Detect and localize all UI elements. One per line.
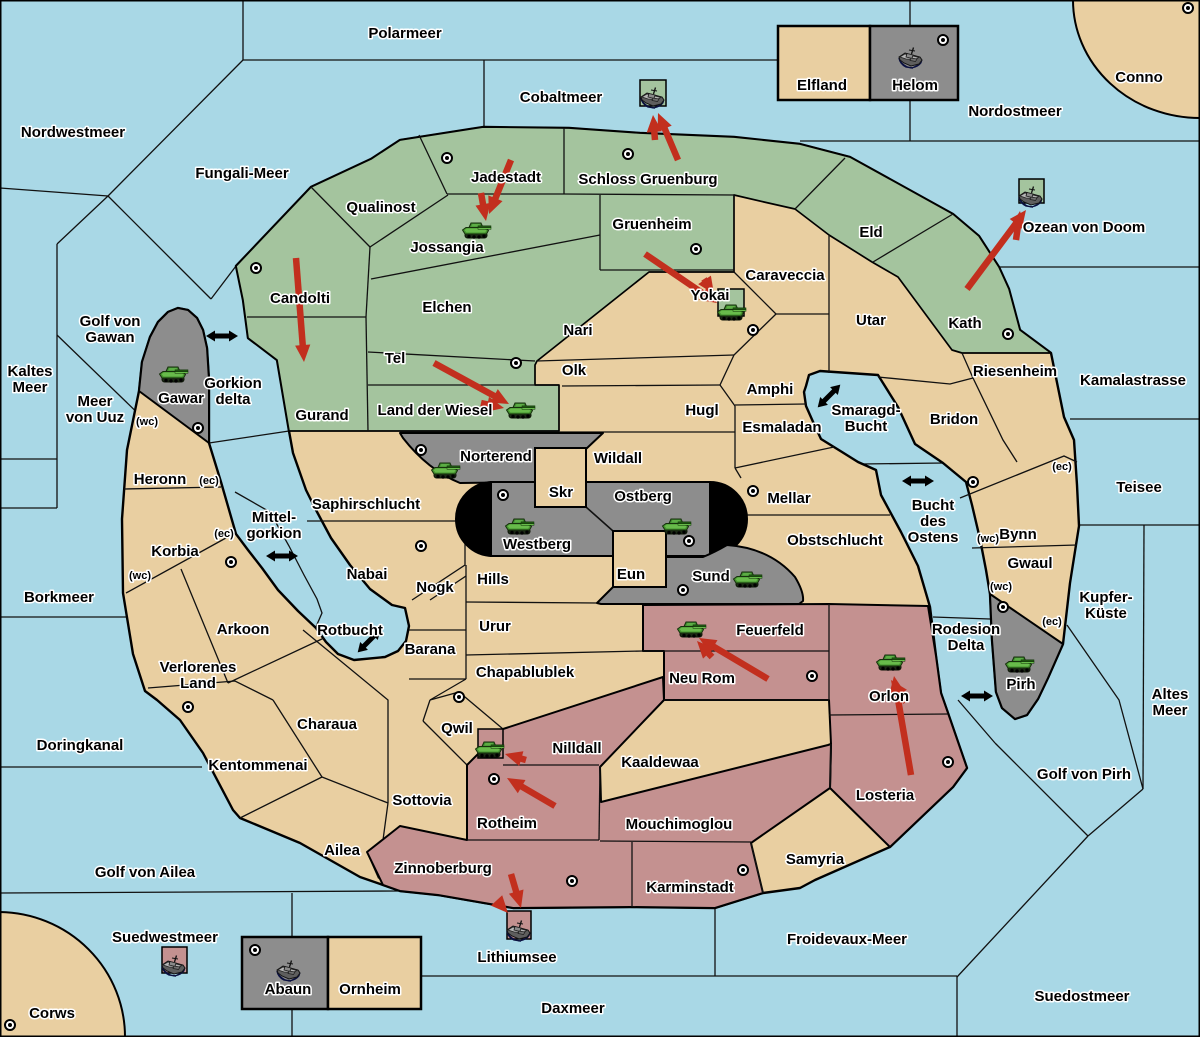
svg-text:(ec): (ec) (1042, 616, 1062, 628)
svg-text:Rotheim: Rotheim (477, 815, 537, 832)
svg-text:Caraveccia: Caraveccia (745, 267, 825, 284)
svg-text:Gawar: Gawar (158, 390, 204, 407)
svg-text:Riesenheim: Riesenheim (973, 363, 1057, 380)
svg-text:Candolti: Candolti (270, 290, 330, 307)
svg-text:Ostberg: Ostberg (614, 488, 672, 505)
svg-text:Land: Land (180, 675, 216, 692)
svg-text:Gawan: Gawan (85, 329, 134, 346)
svg-text:Hills: Hills (477, 571, 509, 588)
svg-text:Heronn: Heronn (134, 471, 187, 488)
svg-text:Golf von: Golf von (80, 313, 141, 330)
svg-text:Feuerfeld: Feuerfeld (736, 622, 804, 639)
svg-text:Nilldall: Nilldall (552, 740, 601, 757)
svg-text:Utar: Utar (856, 312, 886, 329)
svg-text:Ailea: Ailea (324, 842, 361, 859)
svg-text:Helom: Helom (892, 77, 938, 94)
svg-text:Meer: Meer (77, 393, 112, 410)
svg-text:(wc): (wc) (129, 570, 151, 582)
svg-text:Elfland: Elfland (797, 77, 847, 94)
svg-text:Borkmeer: Borkmeer (24, 589, 94, 606)
svg-text:Orlon: Orlon (869, 688, 909, 705)
svg-text:Nari: Nari (563, 322, 592, 339)
svg-text:Arkoon: Arkoon (217, 621, 270, 638)
svg-text:Qwil: Qwil (441, 720, 473, 737)
svg-text:Teisee: Teisee (1116, 479, 1162, 496)
svg-text:Elchen: Elchen (422, 299, 471, 316)
svg-text:Pirh: Pirh (1006, 676, 1035, 693)
svg-text:Froidevaux-Meer: Froidevaux-Meer (787, 931, 907, 948)
svg-text:Esmaladan: Esmaladan (742, 419, 821, 436)
svg-text:Obstschlucht: Obstschlucht (787, 532, 883, 549)
svg-text:Ozean von Doom: Ozean von Doom (1023, 219, 1146, 236)
svg-text:Eun: Eun (617, 566, 645, 583)
svg-text:Golf von Ailea: Golf von Ailea (95, 864, 196, 881)
svg-text:Küste: Küste (1085, 605, 1127, 622)
svg-text:Urur: Urur (479, 618, 511, 635)
svg-text:Chapablublek: Chapablublek (476, 664, 575, 681)
svg-text:Tel: Tel (385, 350, 406, 367)
svg-text:Corws: Corws (29, 1005, 75, 1022)
svg-text:Nogk: Nogk (416, 579, 454, 596)
svg-text:Hugl: Hugl (685, 402, 718, 419)
svg-text:Kaltes: Kaltes (7, 363, 52, 380)
svg-text:Amphi: Amphi (747, 381, 794, 398)
svg-text:Daxmeer: Daxmeer (541, 1000, 605, 1017)
svg-text:Bynn: Bynn (999, 526, 1037, 543)
svg-text:Gwaul: Gwaul (1007, 555, 1052, 572)
svg-text:Zinnoberburg: Zinnoberburg (394, 860, 492, 877)
svg-text:Wildall: Wildall (594, 450, 642, 467)
svg-text:Meer: Meer (1152, 702, 1187, 719)
svg-text:des: des (920, 513, 946, 530)
svg-text:Lithiumsee: Lithiumsee (477, 949, 556, 966)
svg-text:Mellar: Mellar (767, 490, 811, 507)
svg-text:Golf von Pirh: Golf von Pirh (1037, 766, 1131, 783)
svg-text:Sund: Sund (692, 568, 730, 585)
svg-text:(wc): (wc) (990, 581, 1012, 593)
svg-text:Suedwestmeer: Suedwestmeer (112, 929, 218, 946)
svg-text:Verlorenes: Verlorenes (160, 659, 237, 676)
svg-text:Nordostmeer: Nordostmeer (968, 103, 1062, 120)
svg-text:Cobaltmeer: Cobaltmeer (520, 89, 603, 106)
svg-text:delta: delta (215, 391, 251, 408)
svg-text:Nordwestmeer: Nordwestmeer (21, 124, 125, 141)
svg-text:Korbia: Korbia (151, 543, 199, 560)
svg-text:Suedostmeer: Suedostmeer (1034, 988, 1129, 1005)
svg-text:(wc): (wc) (977, 533, 999, 545)
svg-text:Samyria: Samyria (786, 851, 845, 868)
svg-text:Nabai: Nabai (347, 566, 388, 583)
svg-text:Schloss Gruenburg: Schloss Gruenburg (578, 171, 717, 188)
svg-text:Kath: Kath (948, 315, 981, 332)
svg-text:Kupfer-: Kupfer- (1079, 589, 1132, 606)
svg-text:Conno: Conno (1115, 69, 1162, 86)
svg-text:Sottovia: Sottovia (392, 792, 452, 809)
svg-text:Meer: Meer (12, 379, 47, 396)
svg-text:Altes: Altes (1152, 686, 1189, 703)
svg-text:Land der Wiesel: Land der Wiesel (378, 402, 493, 419)
svg-text:(ec): (ec) (214, 528, 234, 540)
svg-text:Skr: Skr (549, 484, 573, 501)
svg-text:Bucht: Bucht (912, 497, 955, 514)
svg-text:(ec): (ec) (199, 475, 219, 487)
svg-text:Gorkion: Gorkion (204, 375, 262, 392)
svg-text:Jossangia: Jossangia (410, 239, 484, 256)
svg-text:Mittel-: Mittel- (252, 509, 296, 526)
svg-text:Norterend: Norterend (460, 448, 532, 465)
svg-text:Kamalastrasse: Kamalastrasse (1080, 372, 1186, 389)
svg-text:Bucht: Bucht (845, 418, 888, 435)
svg-text:Ostens: Ostens (908, 529, 959, 546)
svg-text:Olk: Olk (562, 362, 587, 379)
svg-text:Rodesion: Rodesion (932, 621, 1000, 638)
svg-text:Yokai: Yokai (691, 287, 730, 304)
svg-text:Karminstadt: Karminstadt (646, 879, 734, 896)
svg-text:Polarmeer: Polarmeer (368, 25, 442, 42)
svg-text:Fungali-Meer: Fungali-Meer (195, 165, 289, 182)
svg-text:Bridon: Bridon (930, 411, 978, 428)
svg-text:von Uuz: von Uuz (66, 409, 124, 426)
svg-text:Qualinost: Qualinost (346, 199, 415, 216)
svg-text:Charaua: Charaua (297, 716, 358, 733)
svg-text:Kaaldewaa: Kaaldewaa (621, 754, 699, 771)
svg-text:Jadestadt: Jadestadt (471, 169, 541, 186)
svg-text:Losteria: Losteria (856, 787, 915, 804)
svg-text:Barana: Barana (405, 641, 457, 658)
svg-text:Rotbucht: Rotbucht (317, 622, 383, 639)
svg-text:(ec): (ec) (1052, 461, 1072, 473)
svg-text:Abaun: Abaun (265, 981, 312, 998)
svg-text:Gurand: Gurand (295, 407, 348, 424)
svg-text:Gruenheim: Gruenheim (612, 216, 691, 233)
svg-text:Delta: Delta (948, 637, 985, 654)
svg-text:Neu Rom: Neu Rom (669, 670, 735, 687)
svg-text:Kentommenai: Kentommenai (208, 757, 307, 774)
svg-text:Mouchimoglou: Mouchimoglou (626, 816, 733, 833)
svg-text:Ornheim: Ornheim (339, 981, 401, 998)
svg-text:Westberg: Westberg (503, 536, 571, 553)
svg-text:Saphirschlucht: Saphirschlucht (312, 496, 420, 513)
svg-text:Doringkanal: Doringkanal (37, 737, 124, 754)
svg-text:Eld: Eld (859, 224, 882, 241)
svg-text:Smaragd-: Smaragd- (831, 402, 900, 419)
svg-text:gorkion: gorkion (247, 525, 302, 542)
svg-text:(wc): (wc) (136, 416, 158, 428)
